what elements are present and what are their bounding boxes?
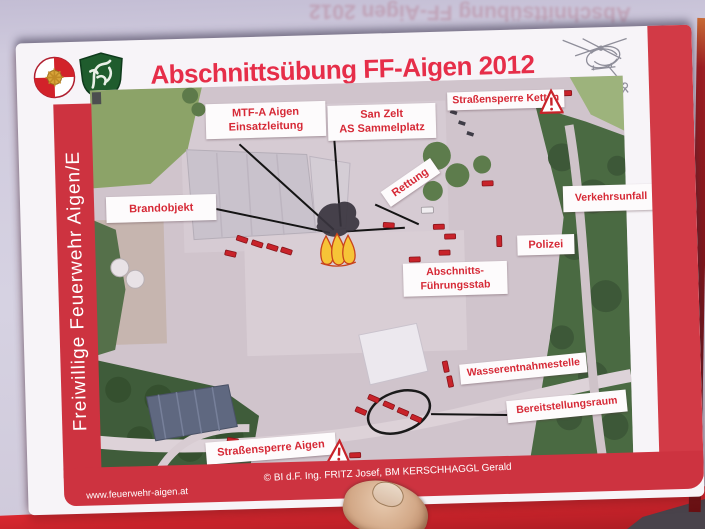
label-brandobjekt: Brandobjekt [106,194,217,223]
photo-scene: Abschnittsübung FF-Aigen 2012 Abschnitts… [0,0,705,529]
printed-page: Abschnittsübung FF-Aigen 2012 [16,25,705,516]
map-corner-icon [92,92,101,104]
sidebar-vertical-text: Freiwillige Feuerwehr Aigen/E [63,150,93,431]
label-abschnitts-fuehrungsstab: Abschnitts- Führungsstab [403,261,508,297]
aerial-map: MTF-A Aigen Einsatzleitung San Zelt AS S… [90,76,633,471]
label-mtf-a-aigen-einsatzleitung: MTF-A Aigen Einsatzleitung [205,101,326,139]
page-bleed-through-text: Abschnittsübung FF-Aigen 2012 [265,0,675,26]
label-polizei: Polizei [517,234,574,256]
label-san-zelt-sammelplatz: San Zelt AS Sammelplatz [327,103,436,141]
label-verkehrsunfall: Verkehrsunfall [563,184,660,212]
warning-triangle-icon [539,88,564,116]
fire-brigade-emblem [32,54,77,101]
